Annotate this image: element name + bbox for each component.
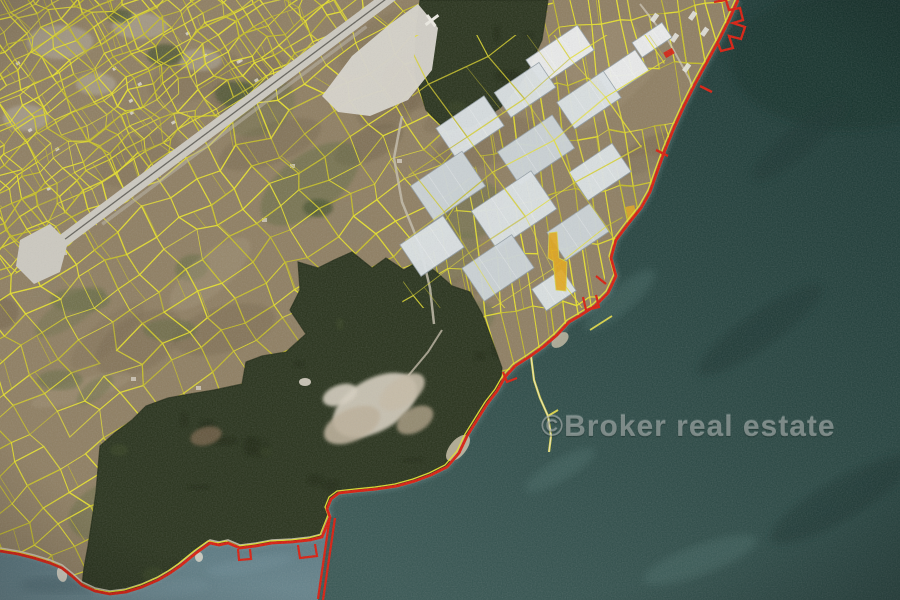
texture-overlay [0,0,900,600]
satellite-map-image[interactable]: ©Broker real estate [0,0,900,600]
watermark-text: ©Broker real estate [541,410,836,444]
map-canvas [0,0,900,600]
